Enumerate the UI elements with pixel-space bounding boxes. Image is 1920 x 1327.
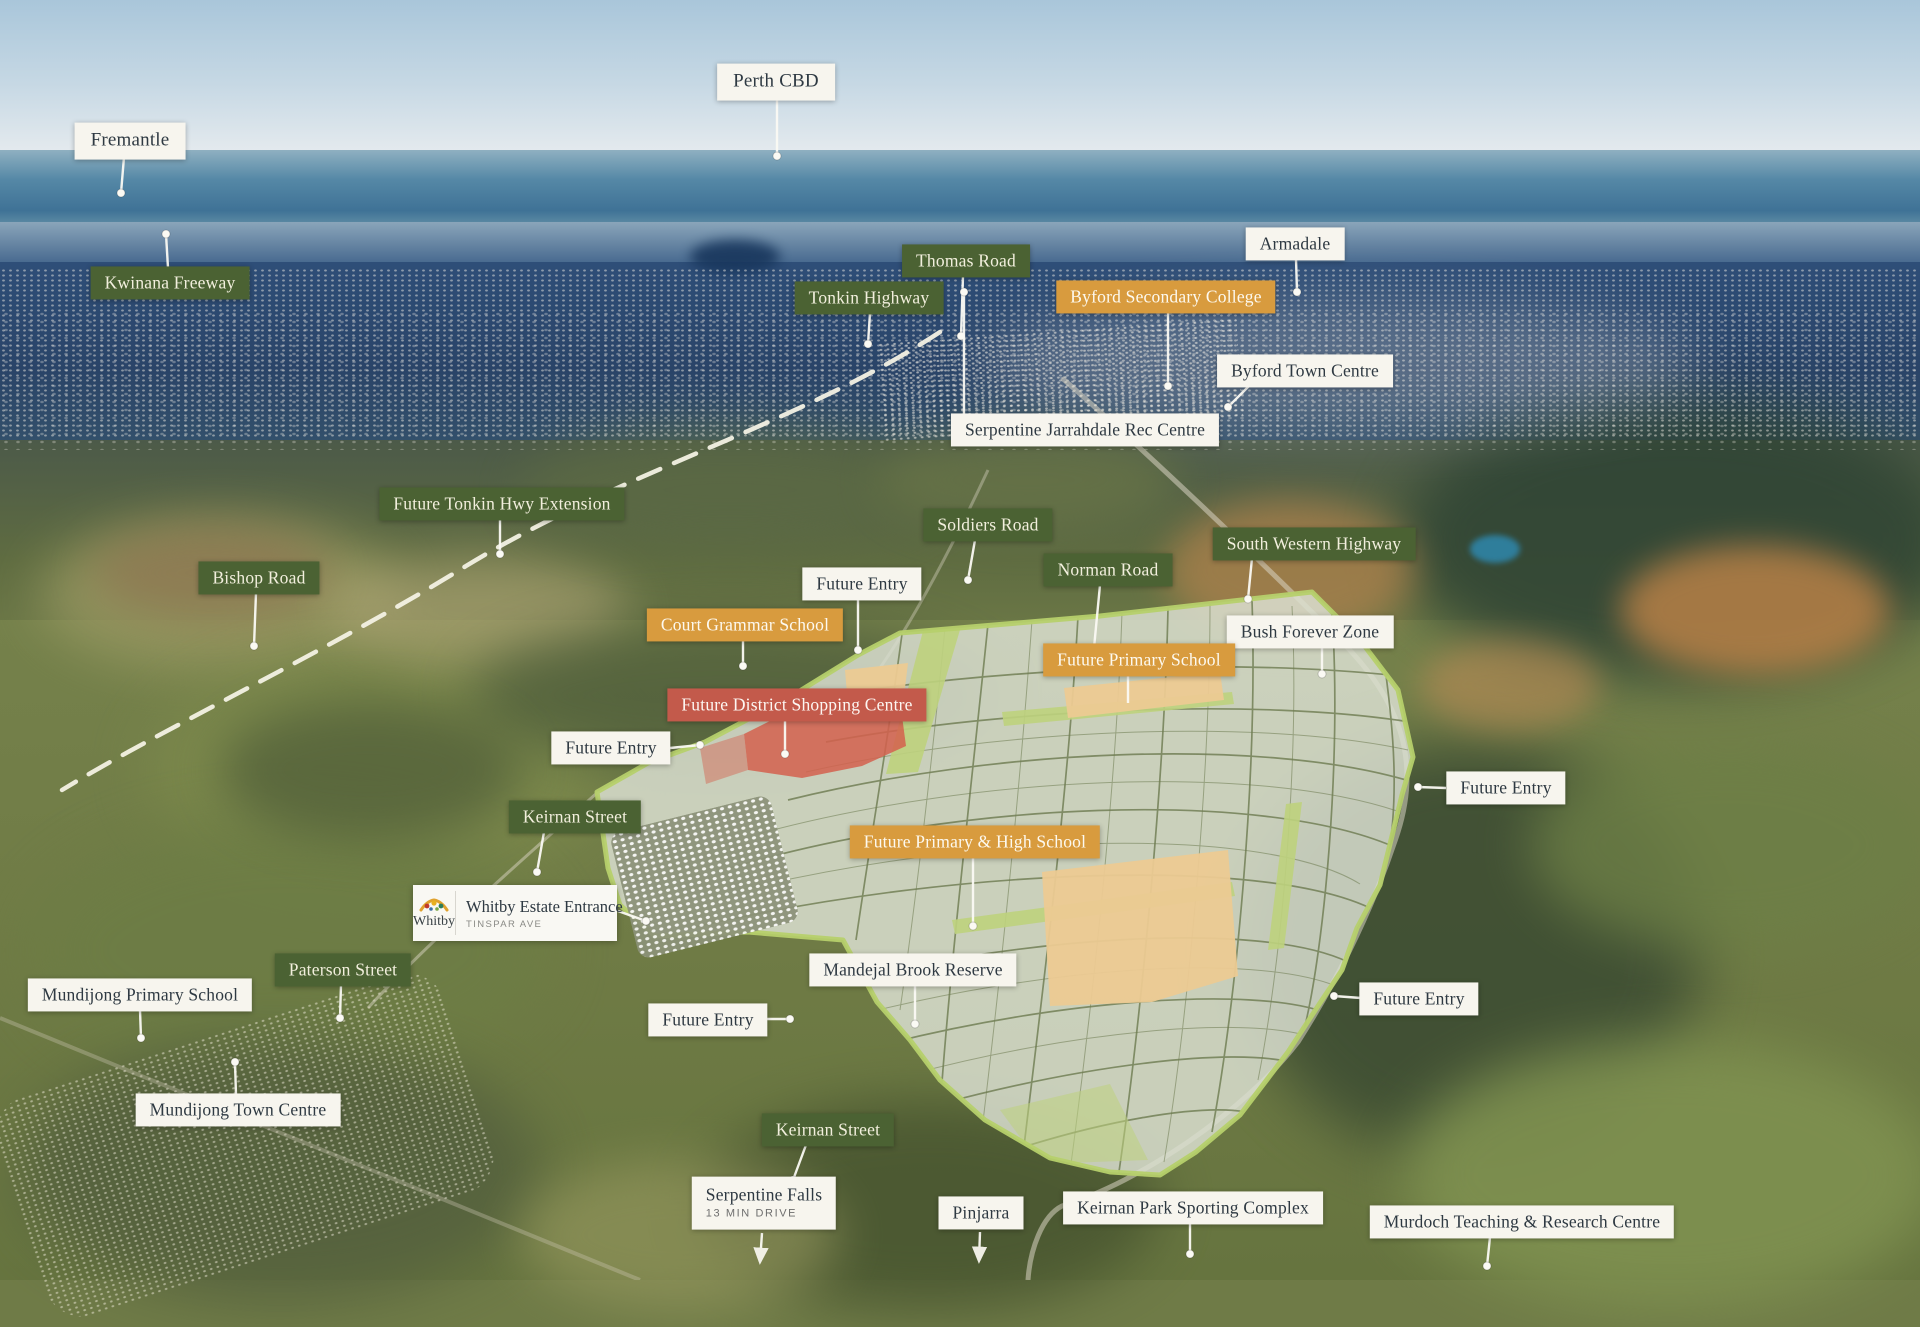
whitby-emblem-icon (419, 897, 449, 913)
whitby-entrance-title: Whitby Estate Entrance (466, 897, 623, 917)
whitby-wordmark: Whitby (413, 914, 455, 930)
aerial-map: { "title": "Whitby estate aerial locatio… (0, 0, 1920, 1280)
whitby-logo: Whitby (413, 891, 456, 935)
whitby-entrance-card: Whitby Whitby Estate Entrance TINSPAR AV… (413, 885, 617, 941)
whitby-entrance-street: TINSPAR AVE (466, 919, 623, 930)
leader-lines-layer (0, 0, 1920, 1280)
